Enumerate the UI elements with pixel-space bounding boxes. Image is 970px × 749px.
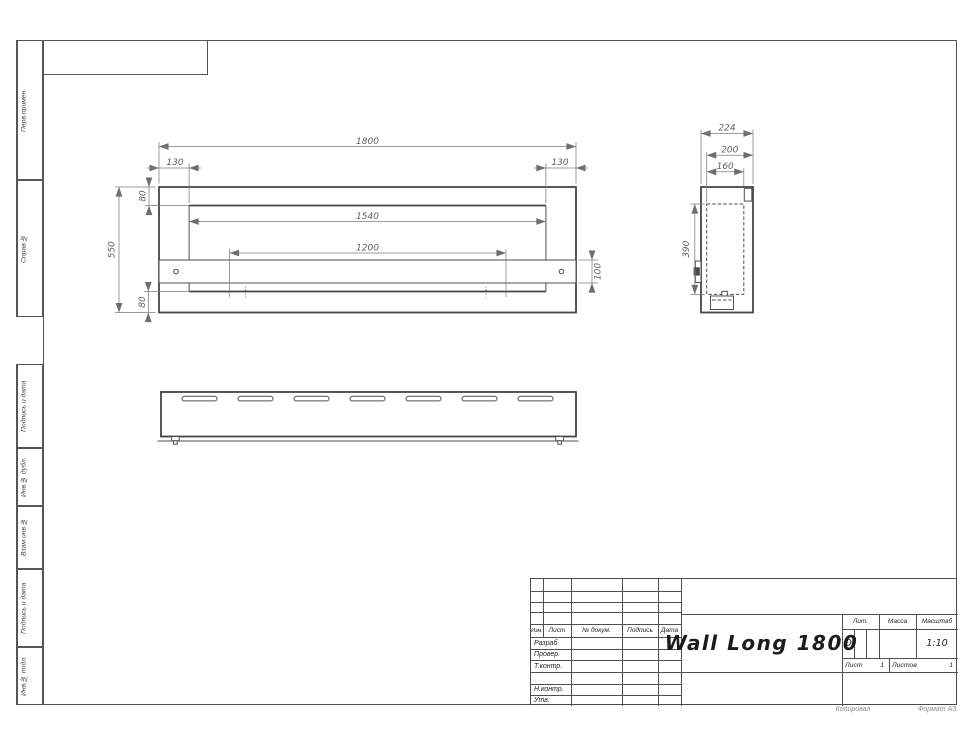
mount-hole-right xyxy=(559,269,564,274)
center-mark-left xyxy=(245,287,247,299)
tb-mass-label: Масса xyxy=(879,614,916,629)
tb-litera-value: О xyxy=(842,629,854,658)
vent-slot xyxy=(350,396,385,401)
mount-hole-left xyxy=(174,269,179,274)
dim-label: 390 xyxy=(682,240,692,257)
dim-160: 160 xyxy=(707,162,744,186)
copy-note: Копировал xyxy=(808,706,898,713)
tb-line xyxy=(622,579,623,706)
tb-role-empty xyxy=(531,672,571,684)
tb-header-izm: Изм. xyxy=(531,624,543,637)
vent-slot xyxy=(182,396,217,401)
tb-litera-label: Лит. xyxy=(842,614,879,629)
vent-slot xyxy=(406,396,441,401)
dim-label: 550 xyxy=(108,241,118,258)
tb-sheet-cell: Лист 1 xyxy=(842,658,889,672)
tb-line xyxy=(658,579,659,706)
vent-slot xyxy=(518,396,553,401)
side-top-bracket xyxy=(744,188,752,201)
tb-header-sign: Подпись xyxy=(622,624,658,637)
tb-line xyxy=(531,672,958,673)
center-mark-right xyxy=(485,287,487,299)
dim-label: 80 xyxy=(138,296,148,308)
format-note: Формат А3 xyxy=(907,706,967,713)
tb-sheet-value: 1 xyxy=(880,662,884,669)
side-burner-tray xyxy=(711,296,734,310)
tb-role-nkontr: Н.контр. xyxy=(531,684,571,695)
dim-100: 100 xyxy=(579,251,604,293)
bottom-tab-right xyxy=(556,437,564,441)
tb-line xyxy=(531,612,681,613)
tb-sheet-label: Лист xyxy=(845,662,863,669)
dim-label: 200 xyxy=(721,146,738,156)
front-mount-bracket xyxy=(159,260,576,283)
tb-header-doc: № докум. xyxy=(571,624,622,637)
side-tray-notch xyxy=(722,291,728,296)
dim-label: 1200 xyxy=(356,244,379,254)
tb-sheets-label: Листов xyxy=(892,662,917,669)
vent-slot xyxy=(238,396,273,401)
tb-sheets-cell: Листов 1 xyxy=(889,658,958,672)
dim-label: 160 xyxy=(717,162,734,172)
tb-line xyxy=(531,602,681,603)
drawing-sheet: Перв.примен. Справ.№ Подпись и дата Инв.… xyxy=(0,0,970,749)
dim-label: 224 xyxy=(718,124,735,134)
tb-role-razrab: Разраб. xyxy=(531,637,571,649)
dim-label: 130 xyxy=(166,158,183,168)
side-firebox-hidden xyxy=(707,204,744,294)
front-view: 1800 130 130 xyxy=(108,137,604,322)
dim-label: 100 xyxy=(594,263,604,280)
dim-1800: 1800 xyxy=(159,137,576,184)
tb-role-utv: Утв. xyxy=(531,695,571,706)
dim-80-top: 80 xyxy=(139,178,190,216)
dim-label: 130 xyxy=(551,158,568,168)
side-view: 224 200 160 390 xyxy=(682,124,753,313)
vent-slot xyxy=(462,396,497,401)
dim-label: 1540 xyxy=(356,212,379,222)
tb-line xyxy=(571,579,572,706)
tb-sheets-value: 1 xyxy=(949,662,953,669)
dim-130-right: 130 xyxy=(534,158,588,203)
drawing-designation: Wall Long 1800 xyxy=(681,614,842,672)
dim-80-bottom: 80 xyxy=(138,282,190,322)
dim-1540: 1540 xyxy=(189,212,546,222)
bottom-tab-left xyxy=(172,437,180,441)
vent-slot xyxy=(294,396,329,401)
bottom-view xyxy=(158,392,579,444)
tb-role-prover: Провер. xyxy=(531,649,571,660)
tb-line xyxy=(531,591,681,592)
tb-line xyxy=(866,629,867,658)
title-block: Изм. Лист № докум. Подпись Дата Разраб. … xyxy=(530,578,957,705)
tb-scale-value: 1:10 xyxy=(916,629,958,658)
bottom-view-slots xyxy=(182,396,553,401)
dim-label: 1800 xyxy=(356,137,379,147)
tb-scale-label: Масштаб xyxy=(916,614,958,629)
bottom-foot-left xyxy=(174,441,178,444)
tb-header-list: Лист xyxy=(543,624,571,637)
dim-130-left: 130 xyxy=(147,158,201,203)
bottom-foot-right xyxy=(558,441,562,444)
dim-label: 80 xyxy=(139,190,149,202)
tb-role-tkontr: Т.контр. xyxy=(531,660,571,672)
